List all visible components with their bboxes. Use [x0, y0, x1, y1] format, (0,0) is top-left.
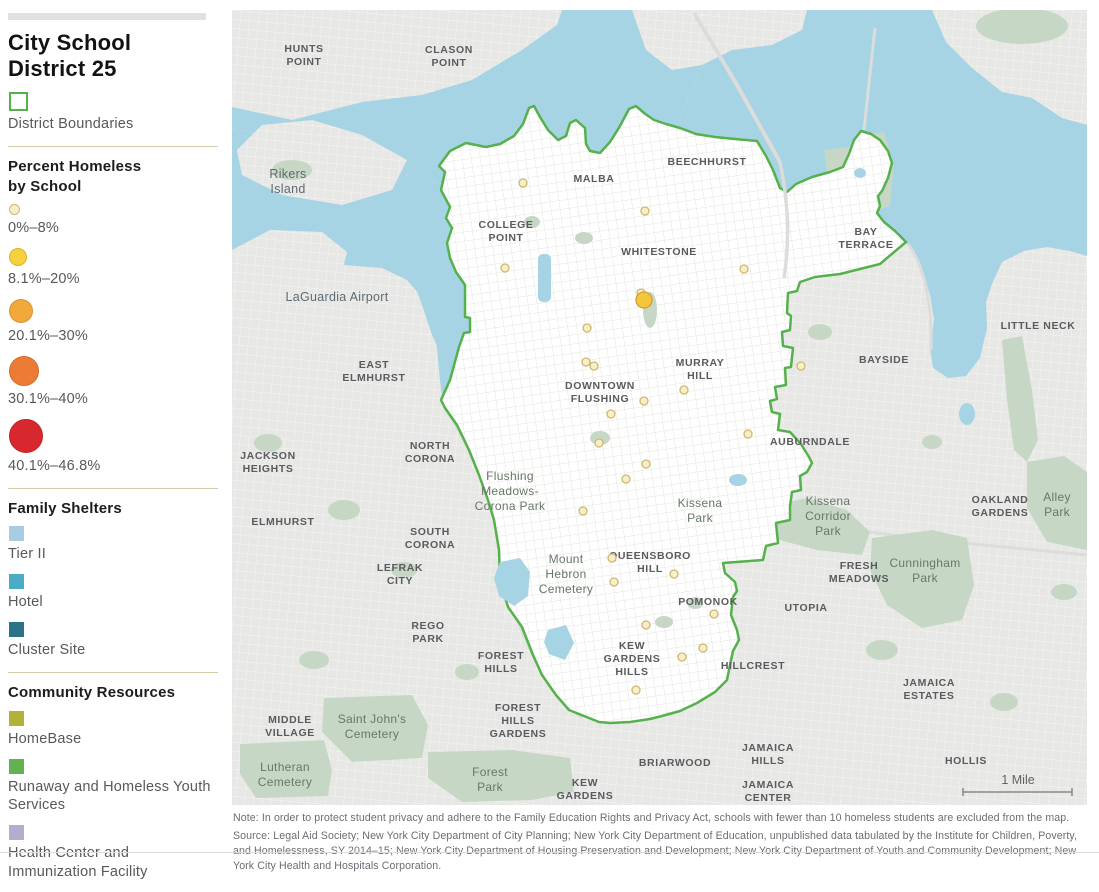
map-label: FORESTHILLS	[478, 650, 524, 675]
map-label: OAKLANDGARDENS	[972, 494, 1029, 519]
map-label: RikersIsland	[269, 167, 306, 196]
school-dot[interactable]	[699, 644, 707, 652]
school-dot[interactable]	[579, 507, 587, 515]
map-label: ELMHURST	[251, 516, 314, 528]
legend-shelter-cluster: Cluster Site	[8, 622, 218, 660]
map-label: HOLLIS	[945, 755, 987, 767]
legend-class-20-30: 20.1%–30%	[8, 299, 218, 346]
school-dot[interactable]	[632, 686, 640, 694]
park-blob	[1051, 584, 1077, 600]
school-dot[interactable]	[636, 292, 652, 308]
legend-class-30-40: 30.1%–40%	[8, 356, 218, 409]
circle-swatch-30-40	[9, 356, 39, 386]
map-label: BRIARWOOD	[639, 757, 711, 769]
school-dot[interactable]	[640, 397, 648, 405]
map-label: AUBURNDALE	[770, 436, 850, 448]
page-title-line2: District 25	[8, 56, 117, 81]
health-center-swatch	[9, 825, 24, 840]
map-label: REGOPARK	[411, 620, 444, 645]
park-blob	[299, 651, 329, 669]
school-dot[interactable]	[641, 207, 649, 215]
legend-divider	[8, 672, 218, 673]
legend-resource-health: Health Center and Immunization Facility	[8, 825, 218, 882]
school-dot[interactable]	[744, 430, 752, 438]
legend-resource-homebase: HomeBase	[8, 711, 218, 749]
runaway-youth-swatch	[9, 759, 24, 774]
map-label: WHITESTONE	[621, 246, 697, 258]
school-dot[interactable]	[610, 578, 618, 586]
school-dot[interactable]	[608, 554, 616, 562]
park-blob	[808, 324, 832, 340]
legend-divider	[8, 488, 218, 489]
park-blob	[990, 693, 1018, 711]
school-dot[interactable]	[642, 621, 650, 629]
page-title: City School District 25	[8, 30, 218, 82]
school-dot[interactable]	[607, 410, 615, 418]
circle-swatch-20-30	[9, 299, 33, 323]
map-label: AlleyPark	[1043, 490, 1071, 519]
legend-class-8-20: 8.1%–20%	[8, 248, 218, 289]
map-label: SOUTHCORONA	[405, 526, 455, 551]
legend-shelter-tier2: Tier II	[8, 526, 218, 564]
map-canvas[interactable]: HUNTSPOINTCLASONPOINTRikersIslandLaGuard…	[232, 10, 1087, 805]
legend-district-boundaries: District Boundaries	[8, 92, 218, 134]
family-shelters-heading: Family Shelters	[8, 499, 218, 519]
circle-swatch-0-8	[9, 204, 20, 215]
park-blob	[328, 500, 360, 520]
district-map[interactable]: HUNTSPOINTCLASONPOINTRikersIslandLaGuard…	[232, 10, 1087, 805]
map-footnotes: Note: In order to protect student privac…	[233, 811, 1089, 877]
school-dot[interactable]	[797, 362, 805, 370]
park-blob	[866, 640, 898, 660]
school-dot[interactable]	[519, 179, 527, 187]
school-dot[interactable]	[680, 386, 688, 394]
kissena-lake	[729, 474, 747, 486]
map-label: JAMAICAESTATES	[903, 677, 955, 702]
legend-class-40-47: 40.1%–46.8%	[8, 419, 218, 476]
tier2-swatch	[9, 526, 24, 541]
school-dot[interactable]	[678, 653, 686, 661]
map-label: LaGuardia Airport	[285, 290, 388, 304]
community-resources-heading: Community Resources	[8, 683, 218, 703]
district-boundary-swatch	[9, 92, 28, 111]
park-blob	[455, 664, 479, 680]
legend-top-bar	[8, 13, 206, 20]
bay-terrace-pond	[854, 168, 866, 178]
page-title-line1: City School	[8, 30, 131, 55]
legend-panel: City School District 25 District Boundar…	[8, 30, 218, 892]
legend-resource-runaway: Runaway and Homeless Youth Services	[8, 759, 218, 816]
map-label: NORTHCORONA	[405, 440, 455, 465]
school-dot[interactable]	[740, 265, 748, 273]
park-blob	[575, 232, 593, 244]
school-dot[interactable]	[622, 475, 630, 483]
park-blob	[922, 435, 942, 449]
bottom-divider	[0, 852, 1099, 853]
circle-swatch-8-20	[9, 248, 27, 266]
map-label: DOWNTOWNFLUSHING	[565, 380, 635, 405]
circle-swatch-40-47	[9, 419, 43, 453]
school-dot[interactable]	[710, 610, 718, 618]
school-dot[interactable]	[501, 264, 509, 272]
percent-homeless-heading: Percent Homeless by School	[8, 157, 218, 197]
map-label: MIDDLEVILLAGE	[265, 714, 315, 739]
school-dot[interactable]	[642, 460, 650, 468]
legend-shelter-hotel: Hotel	[8, 574, 218, 612]
map-label: CLASONPOINT	[425, 44, 473, 69]
legend-divider	[8, 146, 218, 147]
school-dot[interactable]	[583, 324, 591, 332]
map-label: BAYSIDE	[859, 354, 909, 366]
map-label: BEECHHURST	[668, 156, 747, 168]
map-label: POMONOK	[678, 596, 738, 608]
map-label: Saint John'sCemetery	[338, 712, 407, 741]
homebase-swatch	[9, 711, 24, 726]
map-label: LutheranCemetery	[258, 760, 312, 789]
school-dot[interactable]	[670, 570, 678, 578]
oakland-lake	[959, 403, 975, 425]
map-label: HUNTSPOINT	[284, 43, 323, 68]
park-blob	[655, 616, 673, 628]
scale-bar-label: 1 Mile	[1001, 773, 1034, 787]
map-label: LITTLE NECK	[1001, 320, 1076, 332]
school-dot[interactable]	[582, 358, 590, 366]
school-dot[interactable]	[595, 439, 603, 447]
privacy-note: Note: In order to protect student privac…	[233, 811, 1089, 826]
map-label: MALBA	[574, 173, 615, 185]
map-label: JAMAICACENTER	[742, 779, 794, 804]
map-label: ForestPark	[472, 765, 508, 794]
map-label: UTOPIA	[784, 602, 827, 614]
hotel-swatch	[9, 574, 24, 589]
legend-class-0-8: 0%–8%	[8, 204, 218, 238]
college-point-pond	[538, 254, 551, 302]
map-label: HILLCREST	[721, 660, 785, 672]
school-dot[interactable]	[590, 362, 598, 370]
cluster-site-swatch	[9, 622, 24, 637]
district-boundaries-label: District Boundaries	[8, 115, 218, 134]
map-label: JACKSONHEIGHTS	[240, 450, 296, 475]
